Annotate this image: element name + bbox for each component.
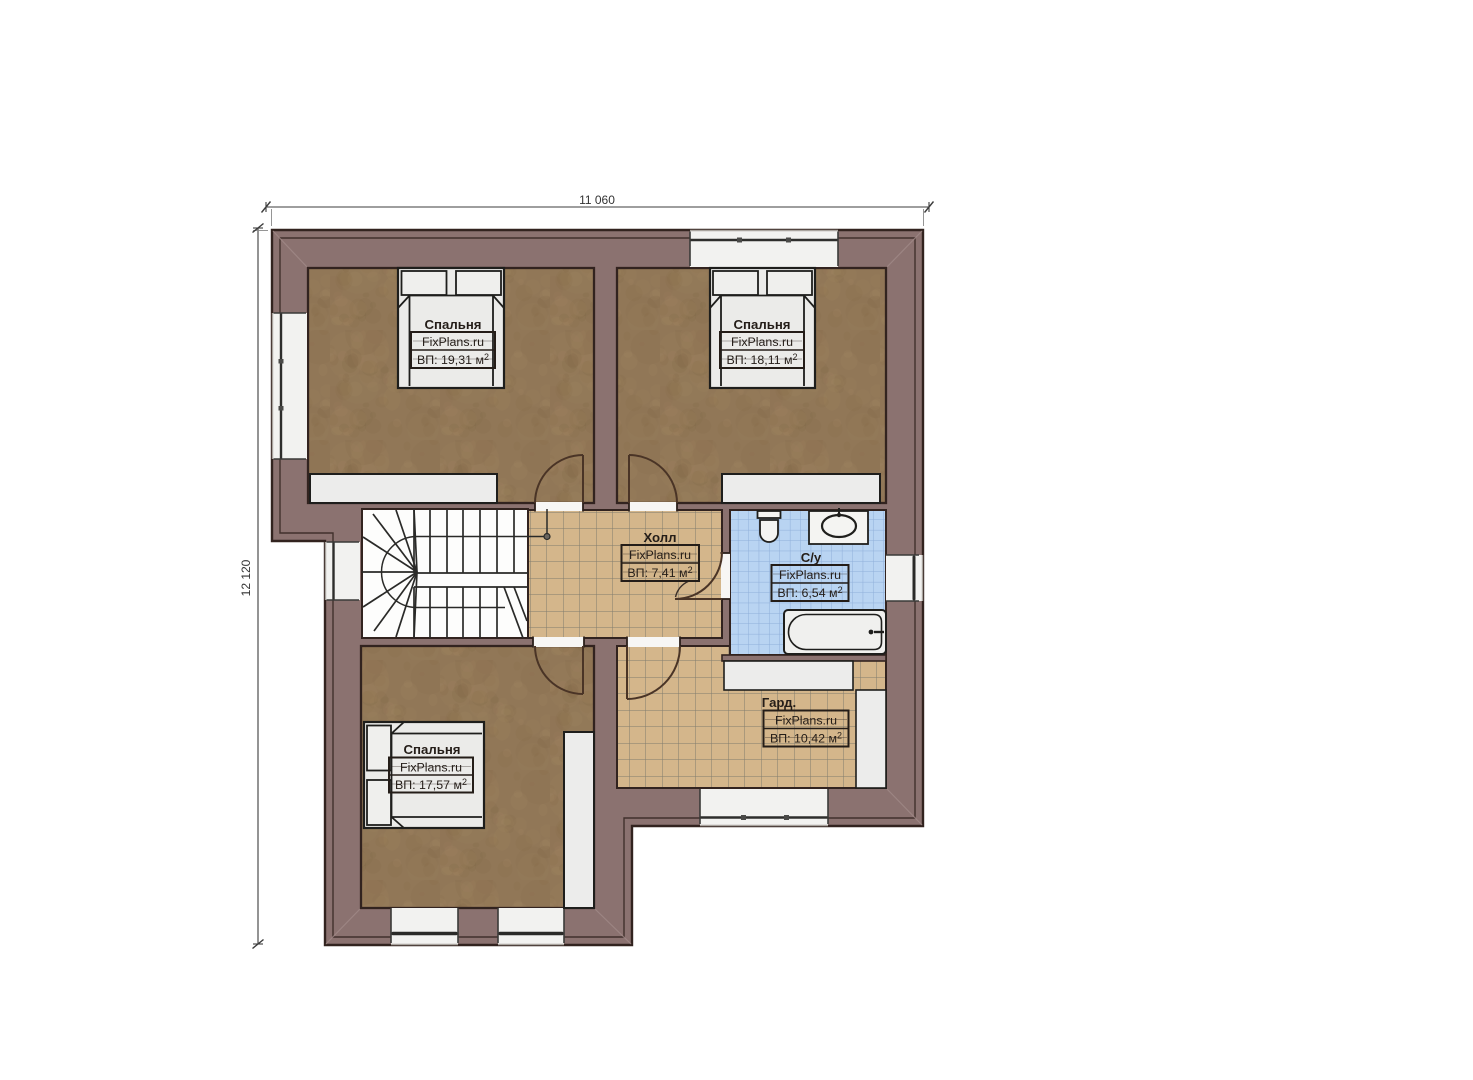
svg-text:FixPlans.ru: FixPlans.ru: [629, 548, 691, 562]
svg-text:11 060: 11 060: [579, 193, 615, 207]
svg-text:FixPlans.ru: FixPlans.ru: [400, 761, 462, 775]
svg-text:FixPlans.ru: FixPlans.ru: [422, 335, 484, 349]
svg-text:ВП: 18,11 м2: ВП: 18,11 м2: [726, 352, 797, 367]
svg-text:Спальня: Спальня: [404, 742, 461, 757]
svg-text:Спальня: Спальня: [425, 317, 482, 332]
svg-text:ВП: 10,42 м2: ВП: 10,42 м2: [770, 731, 842, 746]
svg-text:ВП: 6,54 м2: ВП: 6,54 м2: [777, 585, 842, 600]
svg-text:ВП: 7,41 м2: ВП: 7,41 м2: [627, 565, 692, 580]
svg-text:Холл: Холл: [643, 530, 676, 545]
svg-text:С/у: С/у: [801, 550, 822, 565]
svg-text:ВП: 17,57 м2: ВП: 17,57 м2: [395, 777, 467, 792]
svg-text:12 120: 12 120: [239, 559, 253, 596]
svg-text:ВП: 19,31 м2: ВП: 19,31 м2: [417, 352, 489, 367]
svg-text:Спальня: Спальня: [734, 317, 791, 332]
svg-text:FixPlans.ru: FixPlans.ru: [775, 714, 837, 728]
svg-text:FixPlans.ru: FixPlans.ru: [779, 568, 841, 582]
svg-text:Гард.: Гард.: [762, 695, 796, 710]
svg-text:FixPlans.ru: FixPlans.ru: [731, 335, 793, 349]
